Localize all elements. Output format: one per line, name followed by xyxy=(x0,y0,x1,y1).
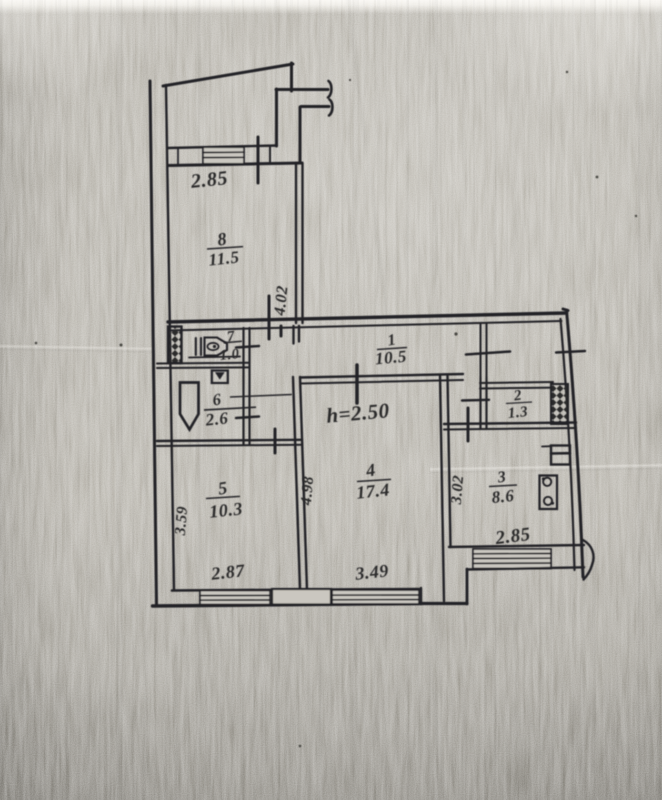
svg-text:4.98: 4.98 xyxy=(298,475,318,506)
svg-text:1.3: 1.3 xyxy=(507,404,529,422)
svg-text:6: 6 xyxy=(211,389,223,409)
svg-text:11.5: 11.5 xyxy=(208,247,241,269)
svg-text:2.6: 2.6 xyxy=(204,408,230,429)
svg-text:1.0: 1.0 xyxy=(219,346,240,364)
svg-text:17.4: 17.4 xyxy=(355,479,390,502)
svg-text:3: 3 xyxy=(496,468,508,486)
svg-text:3.59: 3.59 xyxy=(172,505,192,536)
svg-text:10.3: 10.3 xyxy=(208,498,243,521)
svg-text:2.85: 2.85 xyxy=(189,167,229,193)
svg-text:8.6: 8.6 xyxy=(491,486,516,507)
svg-text:4: 4 xyxy=(364,459,377,480)
svg-text:h=2.50: h=2.50 xyxy=(325,398,390,427)
svg-text:3.49: 3.49 xyxy=(353,560,389,583)
svg-text:2.85: 2.85 xyxy=(493,524,532,549)
svg-text:5: 5 xyxy=(217,477,229,498)
svg-text:10.5: 10.5 xyxy=(374,347,407,369)
svg-text:8: 8 xyxy=(216,228,228,249)
svg-text:2.87: 2.87 xyxy=(209,560,246,584)
svg-text:4.02: 4.02 xyxy=(271,285,291,318)
svg-text:3.02: 3.02 xyxy=(448,474,468,505)
